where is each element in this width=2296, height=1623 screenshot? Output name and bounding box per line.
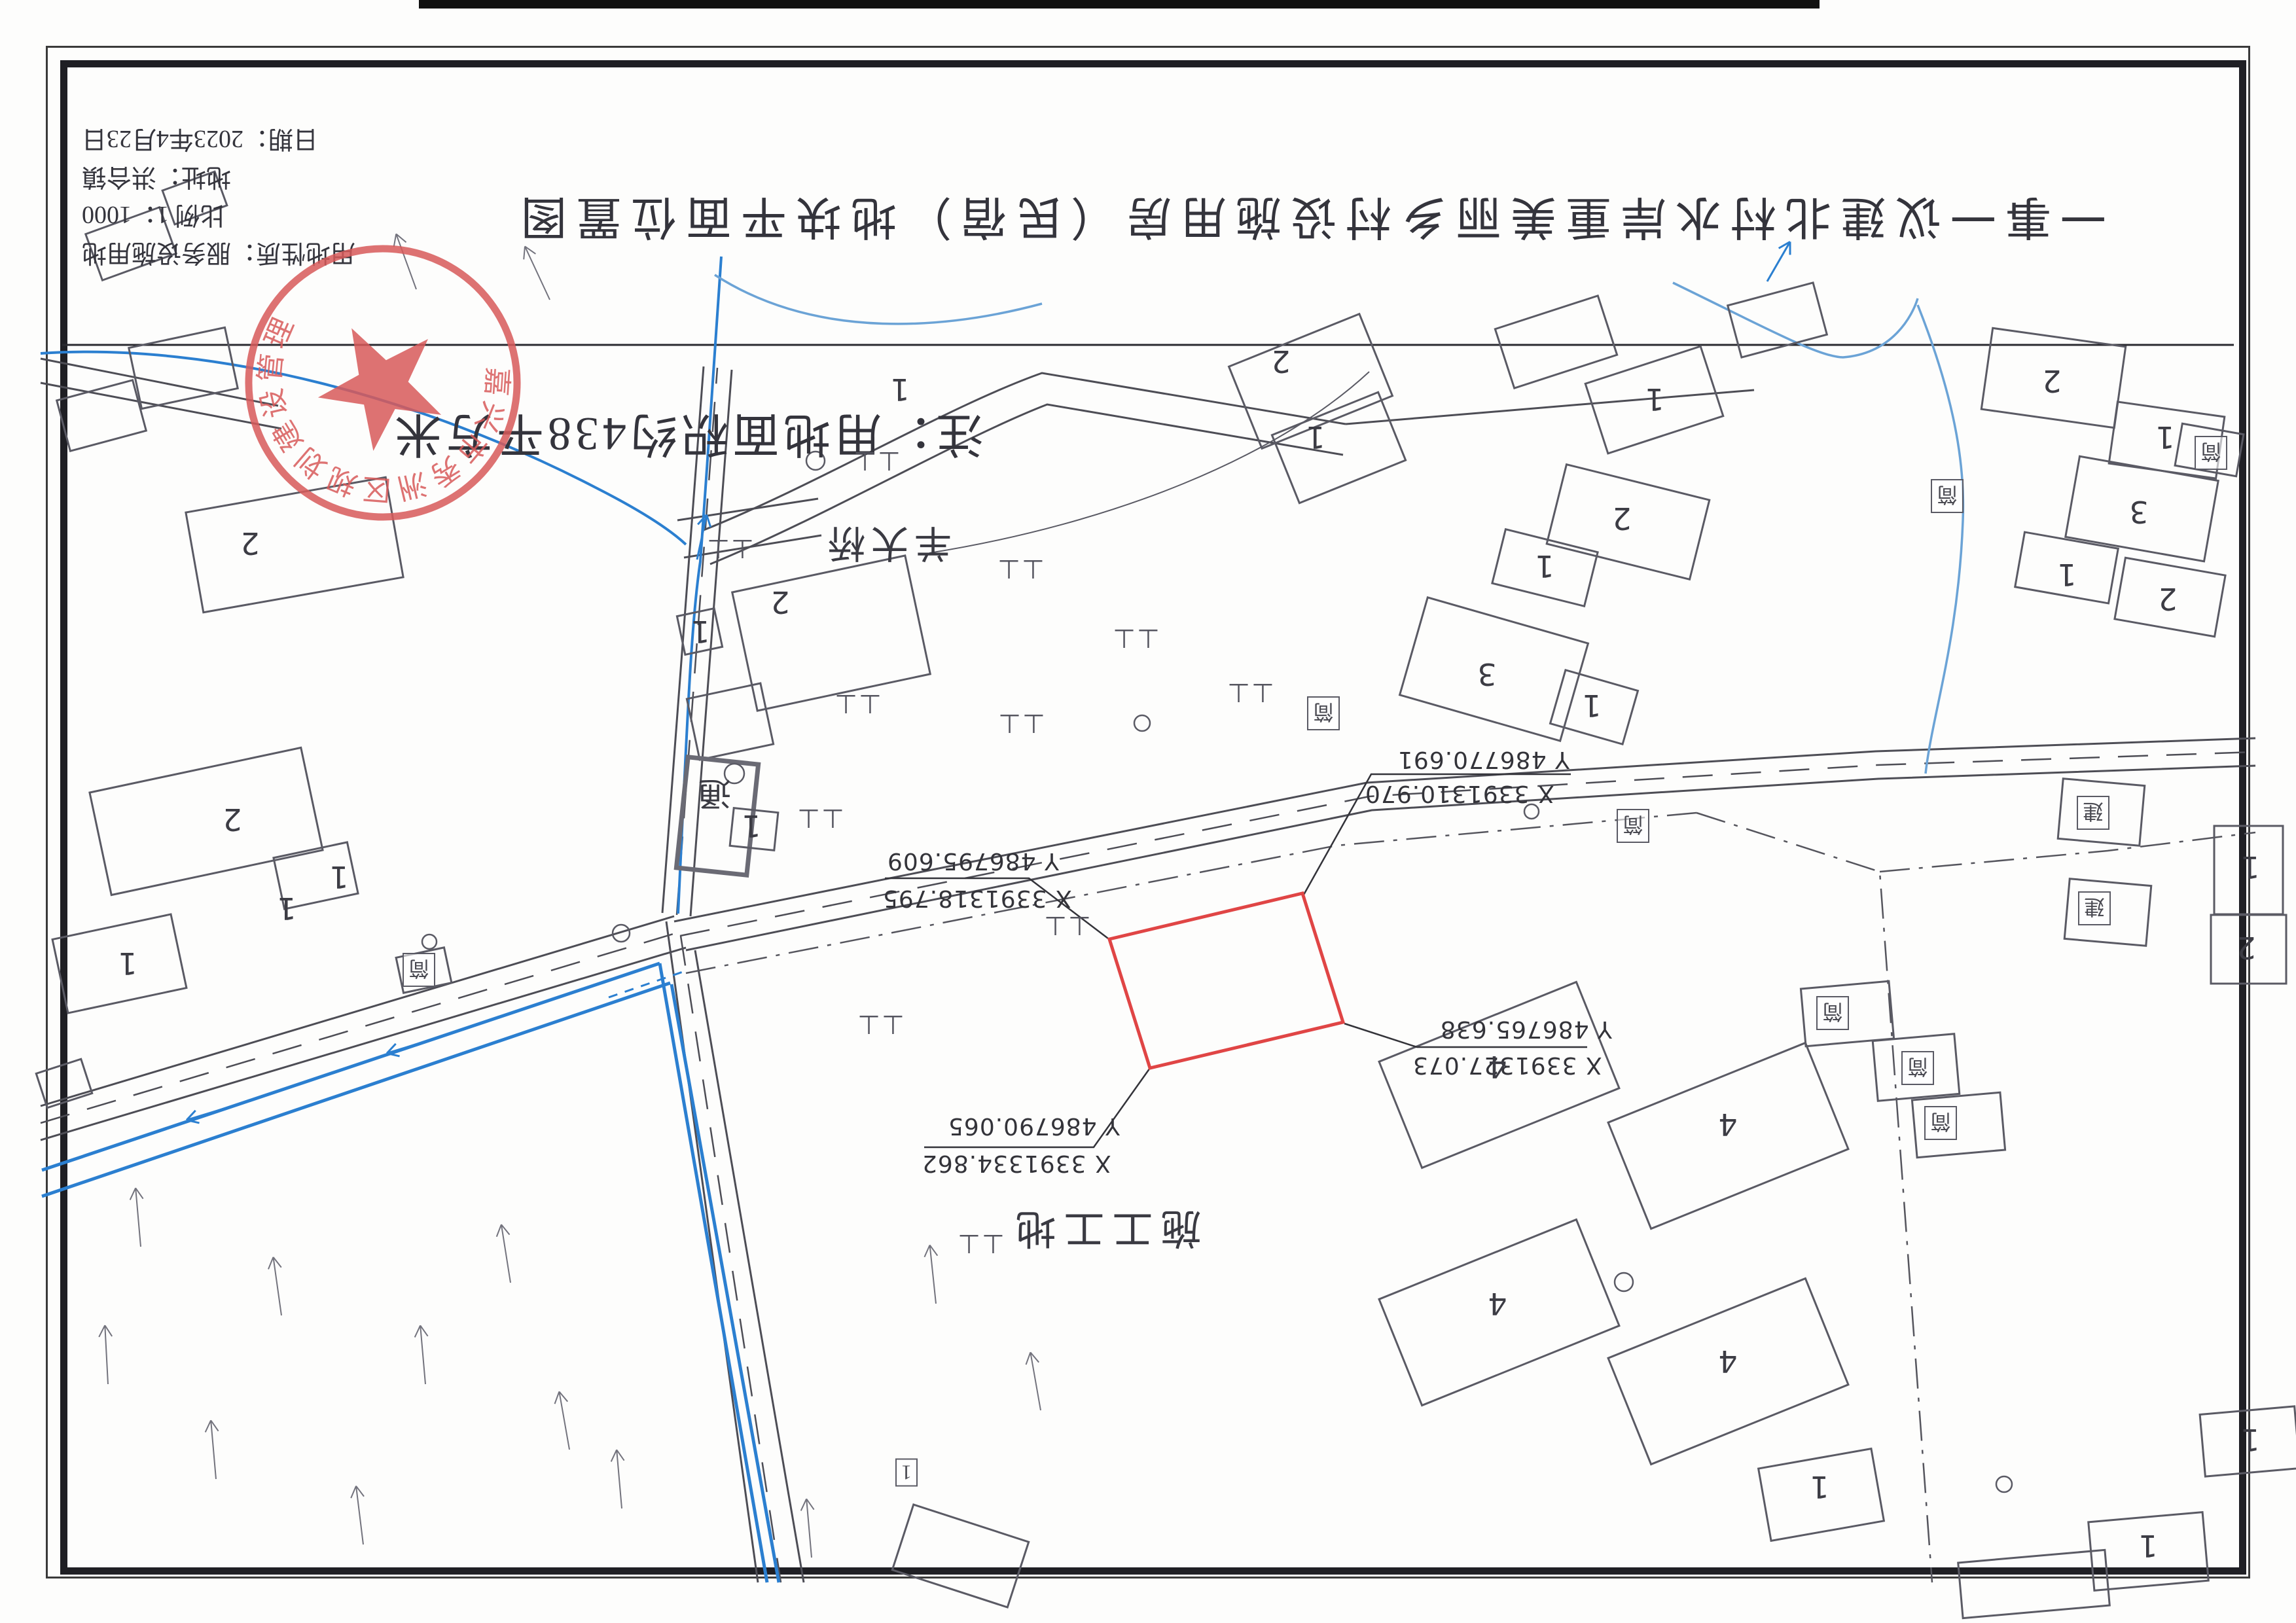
title-block: 用地性质：服务设施用地 比例 1：1000 地址：洪合镇 日期：2023年4月2… — [82, 120, 389, 272]
storey-number-label: 2 — [223, 802, 242, 837]
page-title: 一事一议建北村水岸重美丽乡村设施用房（民宿）地块平面位置图 — [484, 167, 2134, 265]
storey-number-label: 3 — [1477, 656, 1496, 692]
utility-shed-label: 通 — [689, 772, 741, 819]
storey-number-label: 1 — [1810, 1469, 1829, 1505]
scale-line: 比例 1：1000 — [82, 196, 389, 234]
coordinate-x-label: X 3391310.970 — [1365, 780, 1554, 807]
coordinate-y-label: Y 486770.691 — [1397, 746, 1570, 773]
structure-tag-label: 建 — [2078, 891, 2111, 925]
paddy-field-symbol: ⊥⊥ — [1043, 910, 1091, 940]
structure-tag-label: 简 — [403, 953, 435, 987]
storey-number-label: 4 — [1718, 1344, 1737, 1379]
structure-tag-label: 简 — [1617, 809, 1649, 843]
storey-number-label: 1 — [2240, 1422, 2259, 1457]
paddy-field-symbol: ⊥⊥ — [1226, 677, 1274, 707]
storey-number-label: 4 — [1488, 1049, 1507, 1084]
structure-tag-label: 简 — [2195, 436, 2227, 470]
coordinate-y-label: Y 486795.609 — [887, 847, 1059, 874]
area-note: 注：用地面积约438平方米 — [340, 398, 1034, 470]
storey-number-label: 1 — [2240, 849, 2259, 885]
storey-number-label: 2 — [2042, 363, 2061, 399]
paddy-field-symbol: ⊥⊥ — [956, 1228, 1005, 1258]
structure-tag-label: 简 — [1901, 1051, 1934, 1085]
storey-number-label: 1 — [2155, 419, 2174, 455]
storey-number-label: 1 — [2138, 1528, 2157, 1563]
storey-number-label: 4 — [1718, 1107, 1737, 1142]
paddy-field-symbol: ⊥⊥ — [706, 533, 754, 563]
storey-number-label: 1 — [742, 808, 761, 844]
date-line: 日期：2023年4月23日 — [82, 120, 389, 158]
paddy-field-symbol: ⊥⊥ — [996, 554, 1045, 584]
storey-number-label: 1 — [118, 946, 137, 981]
structure-tag-label: 简 — [1307, 696, 1340, 730]
coordinate-x-label: X 3391334.862 — [922, 1150, 1111, 1177]
storey-number-label: 1 — [1645, 382, 1664, 417]
construction-site-label: 施工工地 — [992, 1203, 1217, 1262]
storey-number-label: 1 — [1306, 419, 1325, 455]
coordinate-x-label: X 3391318.795 — [882, 885, 1072, 912]
storey-number-label: 3 — [2129, 494, 2148, 529]
coordinate-y-label: Y 486790.065 — [948, 1113, 1120, 1139]
storey-number-label: 1 — [277, 891, 296, 926]
structure-tag-label: 简 — [1816, 996, 1849, 1030]
paddy-field-symbol: ⊥⊥ — [1111, 623, 1160, 653]
land-use-line: 用地性质：服务设施用地 — [82, 234, 389, 272]
coordinate-y-label: Y 486765.638 — [1440, 1016, 1612, 1043]
storey-number-label: 2 — [240, 526, 259, 561]
map-annotations: 一事一议建北村水岸重美丽乡村设施用房（民宿）地块平面位置图 注：用地面积约438… — [0, 0, 2296, 1623]
storey-number-label: 1 — [1535, 548, 1554, 584]
storey-number-label: 2 — [770, 584, 789, 620]
paddy-field-symbol: ⊥⊥ — [833, 688, 882, 719]
storey-number-label: 2 — [2158, 581, 2177, 616]
storey-number-label: 1 — [2057, 557, 2076, 592]
storey-number-label: 1 — [890, 372, 909, 407]
storey-number-label: 4 — [1488, 1286, 1507, 1321]
structure-tag-label: 1 — [895, 1459, 918, 1487]
coordinate-x-label: X 3391327.073 — [1412, 1052, 1602, 1079]
structure-tag-label: 简 — [1931, 479, 1964, 513]
bridge-name-label: 羊大桥 — [810, 519, 964, 574]
paddy-field-symbol: ⊥⊥ — [856, 1009, 905, 1039]
structure-tag-label: 建 — [2077, 796, 2109, 830]
storey-number-label: 1 — [329, 859, 348, 895]
paddy-field-symbol: ⊥⊥ — [852, 446, 901, 476]
storey-number-label: 2 — [2236, 930, 2255, 965]
scanned-site-plan-sheet: 一事一议建北村水岸重美丽乡村设施用房（民宿）地块平面位置图 注：用地面积约438… — [0, 0, 2296, 1623]
paddy-field-symbol: ⊥⊥ — [796, 803, 844, 833]
address-line: 地址：洪合镇 — [82, 158, 389, 196]
storey-number-label: 1 — [691, 614, 709, 649]
storey-number-label: 2 — [1612, 501, 1631, 536]
storey-number-label: 2 — [1271, 344, 1290, 379]
storey-number-label: 1 — [1582, 688, 1601, 723]
paddy-field-symbol: ⊥⊥ — [997, 708, 1045, 738]
structure-tag-label: 简 — [1924, 1106, 1957, 1140]
